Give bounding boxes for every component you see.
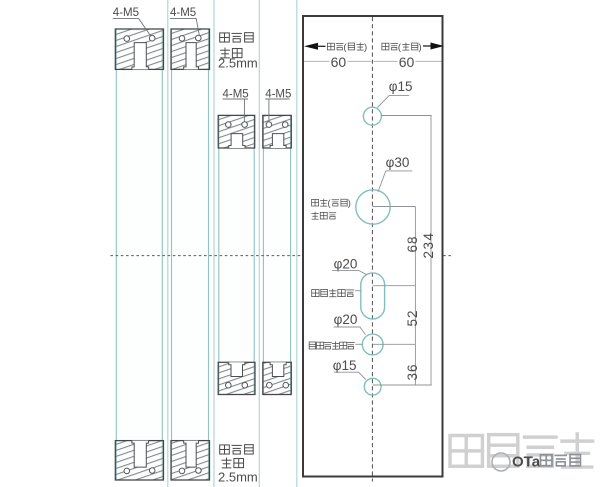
svg-text:OTa: OTa — [512, 454, 541, 471]
svg-text:φ15: φ15 — [333, 358, 357, 373]
svg-text:4-M5: 4-M5 — [113, 7, 139, 19]
svg-text:): ) — [419, 42, 422, 53]
svg-text:60: 60 — [331, 54, 347, 70]
svg-text:2.5mm: 2.5mm — [218, 56, 258, 71]
svg-text:): ) — [348, 197, 351, 208]
svg-text:68: 68 — [405, 235, 420, 252]
svg-text:φ15: φ15 — [389, 79, 413, 94]
svg-text:4-M5: 4-M5 — [170, 7, 196, 19]
svg-text:52: 52 — [405, 309, 420, 326]
svg-text:φ20: φ20 — [334, 256, 358, 271]
svg-text:36: 36 — [405, 363, 420, 380]
svg-text:φ30: φ30 — [386, 155, 410, 170]
svg-text:φ20: φ20 — [334, 312, 358, 327]
svg-text:234: 234 — [421, 231, 436, 258]
svg-text:2.5mm: 2.5mm — [218, 470, 258, 485]
svg-text:60: 60 — [399, 54, 415, 70]
svg-text:): ) — [364, 42, 367, 53]
